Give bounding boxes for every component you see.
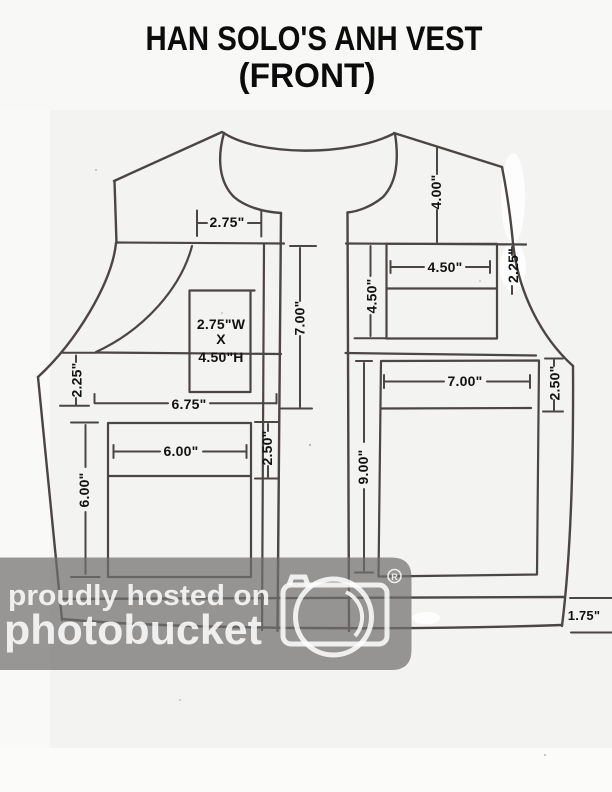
- svg-text:HAN SOLO'S ANH VEST: HAN SOLO'S ANH VEST: [146, 20, 483, 58]
- svg-text:2.50": 2.50": [547, 366, 563, 401]
- svg-text:4.50": 4.50": [428, 259, 463, 275]
- svg-text:4.50": 4.50": [364, 279, 380, 314]
- svg-text:4.50"H: 4.50"H: [198, 349, 243, 365]
- svg-text:X: X: [216, 331, 226, 347]
- svg-text:2.75": 2.75": [210, 214, 245, 230]
- svg-text:(FRONT): (FRONT): [239, 57, 376, 95]
- svg-text:7.00": 7.00": [448, 373, 483, 389]
- svg-text:6.75": 6.75": [172, 396, 207, 412]
- svg-text:2.25": 2.25": [69, 363, 85, 398]
- svg-text:7.00": 7.00": [292, 301, 308, 336]
- svg-text:6.00": 6.00": [76, 473, 92, 508]
- svg-text:2.75"W: 2.75"W: [197, 316, 246, 332]
- svg-text:2.25": 2.25": [505, 248, 521, 283]
- svg-text:1.75": 1.75": [568, 608, 600, 623]
- svg-text:9.00": 9.00": [355, 450, 371, 485]
- svg-text:4.00": 4.00": [428, 175, 444, 210]
- svg-text:2.50": 2.50": [259, 431, 275, 466]
- svg-text:6.00": 6.00": [164, 443, 199, 459]
- svg-text:R: R: [391, 572, 398, 582]
- svg-text:photobucket: photobucket: [4, 606, 262, 653]
